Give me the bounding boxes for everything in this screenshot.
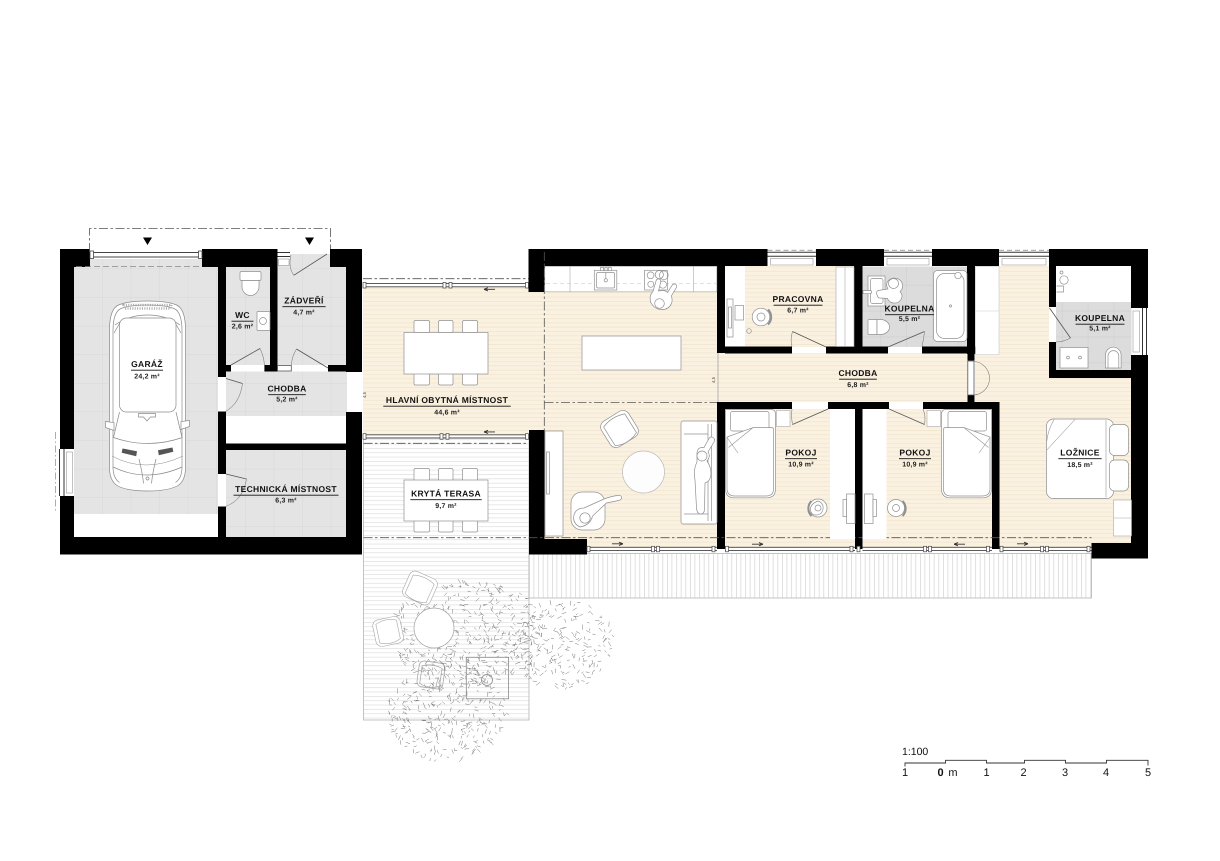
svg-text:2: 2 [1020, 767, 1026, 779]
svg-text:10,9 m²: 10,9 m² [788, 462, 814, 469]
svg-text:0: 0 [937, 767, 943, 779]
svg-text:2,6 m²: 2,6 m² [232, 324, 254, 331]
svg-text:CHODBA: CHODBA [838, 368, 877, 378]
svg-text:6,3 m²: 6,3 m² [275, 498, 297, 505]
svg-text:5: 5 [1145, 767, 1151, 779]
svg-text:CHODBA: CHODBA [267, 384, 306, 394]
svg-text:4,7 m²: 4,7 m² [293, 310, 315, 317]
svg-text:1: 1 [902, 767, 908, 779]
svg-text:TECHNICKÁ MÍSTNOST: TECHNICKÁ MÍSTNOST [235, 484, 337, 494]
svg-text:m: m [948, 767, 957, 779]
svg-text:POKOJ: POKOJ [785, 448, 816, 458]
svg-text:5,5 m²: 5,5 m² [899, 316, 921, 323]
svg-text:1:100: 1:100 [902, 746, 928, 758]
svg-text:6,8 m²: 6,8 m² [847, 382, 869, 389]
svg-text:44,6 m²: 44,6 m² [434, 410, 460, 417]
svg-text:4: 4 [1103, 767, 1109, 779]
svg-text:5,2 m²: 5,2 m² [276, 397, 298, 404]
svg-text:18,5 m²: 18,5 m² [1067, 462, 1093, 469]
svg-text:KRYTÁ TERASA: KRYTÁ TERASA [411, 489, 481, 499]
svg-text:5,1 m²: 5,1 m² [1089, 326, 1111, 333]
svg-text:KOUPELNA: KOUPELNA [884, 304, 934, 314]
svg-text:4,5: 4,5 [711, 376, 716, 382]
svg-text:GARÁŽ: GARÁŽ [131, 359, 163, 369]
svg-text:1: 1 [983, 767, 989, 779]
svg-text:6,7 m²: 6,7 m² [787, 308, 809, 315]
svg-text:LOŽNICE: LOŽNICE [1060, 448, 1099, 458]
svg-text:HLAVNÍ OBYTNÁ MÍSTNOST: HLAVNÍ OBYTNÁ MÍSTNOST [386, 395, 509, 405]
svg-text:WC: WC [235, 310, 250, 320]
svg-text:9,7 m²: 9,7 m² [435, 503, 457, 510]
svg-text:KOUPELNA: KOUPELNA [1075, 313, 1125, 323]
svg-text:3: 3 [1062, 767, 1068, 779]
svg-text:24,2 m²: 24,2 m² [134, 374, 160, 381]
svg-text:4,5: 4,5 [362, 391, 367, 397]
svg-text:ZÁDVEŘÍ: ZÁDVEŘÍ [284, 296, 324, 306]
svg-text:POKOJ: POKOJ [899, 448, 930, 458]
svg-text:PRACOVNA: PRACOVNA [772, 294, 823, 304]
svg-text:10,9 m²: 10,9 m² [902, 462, 928, 469]
